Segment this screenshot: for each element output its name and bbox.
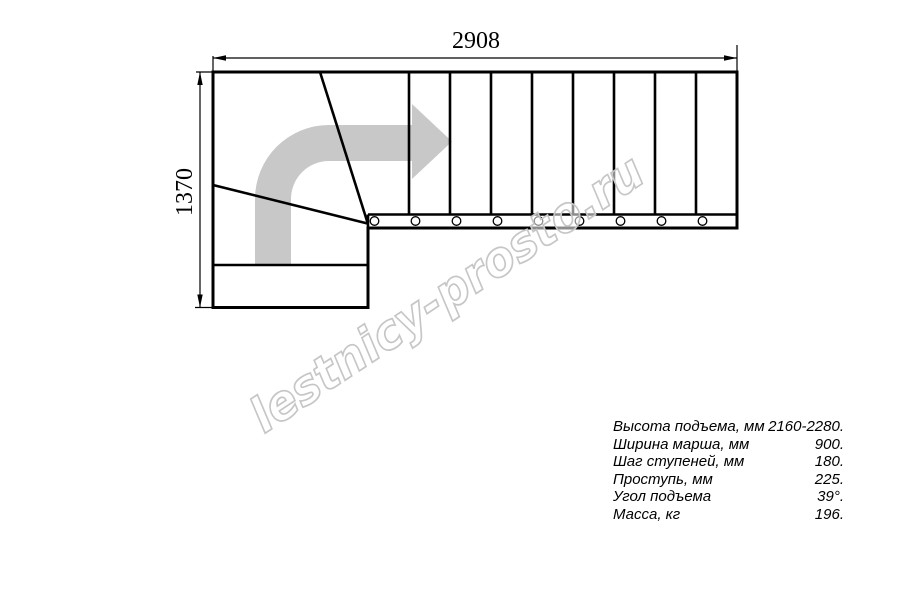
spec-label: Проступь, мм: [613, 471, 713, 489]
dimension-arrowhead: [197, 295, 202, 308]
spec-value: 180.: [815, 453, 844, 471]
left-dimension-label: 1370: [171, 132, 199, 252]
spec-label: Ширина марша, мм: [613, 436, 749, 454]
spec-label: Угол подъема: [613, 488, 711, 506]
baluster-circle: [657, 217, 666, 226]
baluster-circle: [698, 217, 707, 226]
specs-table: Высота подъема, мм 2160-2280. Ширина мар…: [613, 418, 844, 523]
spec-row: Высота подъема, мм 2160-2280.: [613, 418, 844, 436]
dimension-arrowhead: [213, 55, 226, 60]
spec-row: Угол подъема 39°.: [613, 488, 844, 506]
baluster-circle: [452, 217, 461, 226]
baluster-circle: [411, 217, 420, 226]
top-dimension-label: 2908: [416, 27, 536, 55]
spec-row: Проступь, мм 225.: [613, 471, 844, 489]
watermark-text: lestnicy-prosto.ru: [240, 143, 654, 444]
spec-value: 2160-2280.: [768, 418, 844, 436]
staircase-drawing-page: lestnicy-prosto.ru 2908 1370 Высота подъ…: [0, 0, 900, 600]
spec-row: Шаг ступеней, мм 180.: [613, 453, 844, 471]
spec-value: 39°.: [817, 488, 844, 506]
dimension-arrowhead: [197, 72, 202, 85]
baluster-circle: [370, 217, 379, 226]
dimension-arrowhead: [724, 55, 737, 60]
spec-value: 196.: [815, 506, 844, 524]
spec-label: Высота подъема, мм: [613, 418, 765, 436]
spec-value: 900.: [815, 436, 844, 454]
direction-arrow: [255, 104, 452, 265]
spec-label: Масса, кг: [613, 506, 680, 524]
baluster-circle: [616, 217, 625, 226]
spec-row: Масса, кг 196.: [613, 506, 844, 524]
spec-label: Шаг ступеней, мм: [613, 453, 744, 471]
spec-value: 225.: [815, 471, 844, 489]
spec-row: Ширина марша, мм 900.: [613, 436, 844, 454]
